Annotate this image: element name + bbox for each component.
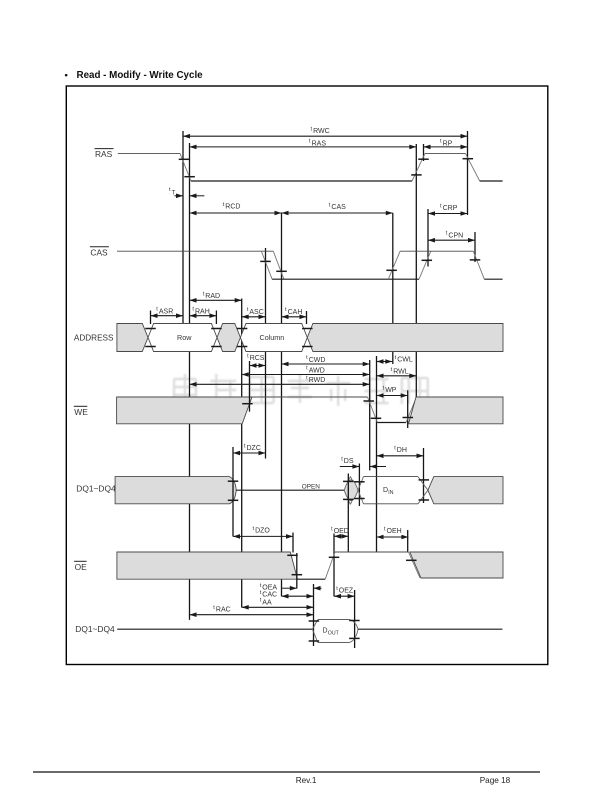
svg-text:CRP: CRP [443,205,458,212]
svg-text:CAS: CAS [331,204,346,211]
svg-text:RAC: RAC [216,607,231,614]
svg-text:OEA: OEA [262,584,277,591]
svg-text:AWD: AWD [309,367,325,374]
svg-text:CAC: CAC [262,592,277,599]
svg-text:OUT: OUT [328,631,340,637]
svg-text:DZC: DZC [247,445,261,452]
svg-text:DQ1~DQ4: DQ1~DQ4 [76,484,116,494]
svg-text:D: D [323,628,328,635]
svg-text:WE: WE [74,407,88,417]
svg-text:RAS: RAS [95,149,113,159]
svg-text:AA: AA [262,599,272,606]
svg-text:Rev.1: Rev.1 [296,776,317,785]
svg-text:OE: OE [75,562,88,572]
svg-text:WP: WP [385,387,397,394]
svg-text:Row: Row [177,333,192,342]
svg-text:Column: Column [260,333,285,342]
svg-text:CAS: CAS [90,248,108,258]
svg-text:RWD: RWD [309,377,326,384]
svg-text:RAH: RAH [195,308,210,315]
svg-text:T: T [172,190,176,197]
svg-text:CWD: CWD [309,357,326,364]
svg-text:RAD: RAD [205,293,220,300]
svg-text:OED: OED [334,528,349,535]
svg-text:OEZ: OEZ [339,588,354,595]
svg-text:RP: RP [443,140,453,147]
svg-text:DH: DH [397,447,407,454]
svg-text:DQ1~DQ4: DQ1~DQ4 [75,624,115,634]
svg-text:ADDRESS: ADDRESS [74,334,114,343]
svg-text:DS: DS [344,458,354,465]
svg-text:Page 18: Page 18 [480,776,511,785]
svg-text:RWC: RWC [313,128,330,135]
svg-text:CAH: CAH [288,309,303,316]
svg-text:ASC: ASC [249,309,263,316]
svg-text:ASR: ASR [159,308,173,315]
svg-text:OEH: OEH [387,528,402,535]
svg-text:CPN: CPN [448,232,463,239]
svg-text:D: D [383,487,388,494]
svg-text:CWL: CWL [397,356,413,363]
svg-text:OPEN: OPEN [302,484,320,491]
svg-text:RCS: RCS [250,355,265,362]
svg-text:DZO: DZO [255,527,270,534]
svg-text:Read - Modify - Write Cycle: Read - Modify - Write Cycle [77,70,204,81]
svg-text:RAS: RAS [312,140,327,147]
svg-text:IN: IN [388,490,393,496]
svg-text:RCD: RCD [225,204,240,211]
svg-text:RWL: RWL [393,368,409,375]
